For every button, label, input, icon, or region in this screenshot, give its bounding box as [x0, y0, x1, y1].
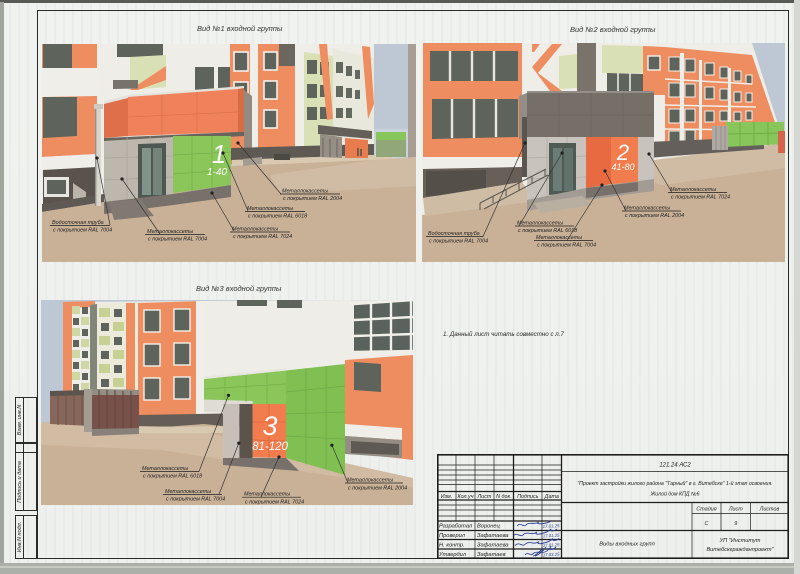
svg-text:Разработал: Разработал: [439, 524, 473, 530]
svg-text:Металлокассеты: Металлокассеты: [147, 229, 193, 235]
svg-text:Металлокассеты: Металлокассеты: [282, 189, 328, 195]
svg-text:Металлокассеты: Металлокассеты: [670, 187, 716, 193]
svg-text:9: 9: [734, 521, 737, 527]
svg-text:Дата: Дата: [544, 494, 559, 500]
svg-text:Металлокассеты: Металлокассеты: [517, 221, 563, 227]
svg-text:С: С: [705, 521, 709, 527]
svg-text:Металлокассеты: Металлокассеты: [232, 227, 278, 233]
svg-text:с покрытием RAL 7024: с покрытием RAL 7024: [671, 195, 730, 201]
svg-text:Утвердил: Утвердил: [438, 552, 467, 558]
svg-text:Зафатаева: Зафатаева: [477, 533, 509, 539]
svg-text:17.01.25: 17.01.25: [543, 523, 561, 529]
svg-text:Лист: Лист: [477, 494, 492, 500]
svg-text:Металлокассеты: Металлокассеты: [347, 478, 393, 484]
svg-text:УП "Институт: УП "Институт: [719, 538, 761, 544]
svg-text:Металлокассеты: Металлокассеты: [165, 489, 211, 495]
svg-text:Водосточная труба: Водосточная труба: [428, 231, 480, 237]
svg-text:Металлокассеты: Металлокассеты: [247, 206, 293, 212]
svg-text:Н. контр.: Н. контр.: [439, 543, 465, 549]
svg-text:N док.: N док.: [496, 494, 511, 500]
svg-text:с покрытием RAL 7024: с покрытием RAL 7024: [233, 234, 292, 240]
svg-text:Изм.: Изм.: [441, 494, 453, 500]
svg-text:121.24 АС2: 121.24 АС2: [659, 463, 691, 469]
svg-text:Металлокассеты: Металлокассеты: [244, 492, 290, 498]
svg-text:с покрытием RAL 2004: с покрытием RAL 2004: [348, 486, 407, 492]
svg-text:Воронец: Воронец: [477, 524, 501, 530]
svg-text:17.01.25: 17.01.25: [543, 533, 561, 539]
svg-text:Зафатаев: Зафатаев: [477, 552, 506, 558]
svg-text:Лист: Лист: [728, 507, 743, 513]
svg-text:Витебскгражданпроект": Витебскгражданпроект": [706, 547, 774, 553]
svg-text:17.01.25: 17.01.25: [543, 542, 561, 548]
svg-text:Металлокассеты: Металлокассеты: [142, 466, 188, 472]
svg-text:Стадия: Стадия: [696, 507, 716, 513]
svg-text:Зафатаева: Зафатаева: [477, 543, 509, 549]
svg-text:с покрытием RAL 2004: с покрытием RAL 2004: [283, 196, 342, 202]
svg-text:с покрытием RAL 7004: с покрытием RAL 7004: [166, 497, 225, 503]
svg-text:17.03.25: 17.03.25: [543, 552, 561, 558]
svg-text:Водосточная труба: Водосточная труба: [52, 220, 104, 226]
svg-text:с покрытием RAL 7004: с покрытием RAL 7004: [429, 239, 488, 245]
svg-text:с покрытием RAL 6018: с покрытием RAL 6018: [143, 474, 202, 480]
svg-text:Листов: Листов: [759, 507, 780, 513]
svg-text:с покрытием RAL 2004: с покрытием RAL 2004: [625, 213, 684, 219]
svg-text:с покрытием RAL 7004: с покрытием RAL 7004: [148, 237, 207, 243]
svg-text:с покрытием RAL 7024: с покрытием RAL 7024: [245, 500, 304, 506]
svg-text:Металлокассеты: Металлокассеты: [624, 206, 670, 212]
svg-text:с покрытием RAL 6018: с покрытием RAL 6018: [518, 228, 577, 234]
svg-text:"Проект застройки жилого район: "Проект застройки жилого района "Тарный"…: [577, 480, 772, 487]
svg-text:Металлокассеты: Металлокассеты: [536, 235, 582, 241]
svg-text:с покрытием RAL 7004: с покрытием RAL 7004: [53, 228, 112, 234]
svg-text:Виды входных групп: Виды входных групп: [599, 542, 655, 548]
svg-text:Подпись: Подпись: [517, 494, 539, 500]
svg-text:с покрытием RAL 7004: с покрытием RAL 7004: [537, 243, 596, 249]
svg-text:Кол.уч: Кол.уч: [457, 494, 473, 500]
svg-text:с покрытием RAL 6018: с покрытием RAL 6018: [248, 214, 307, 220]
svg-text:Проверил: Проверил: [439, 533, 466, 539]
svg-text:Жилой дом КПД №6: Жилой дом КПД №6: [650, 491, 700, 498]
